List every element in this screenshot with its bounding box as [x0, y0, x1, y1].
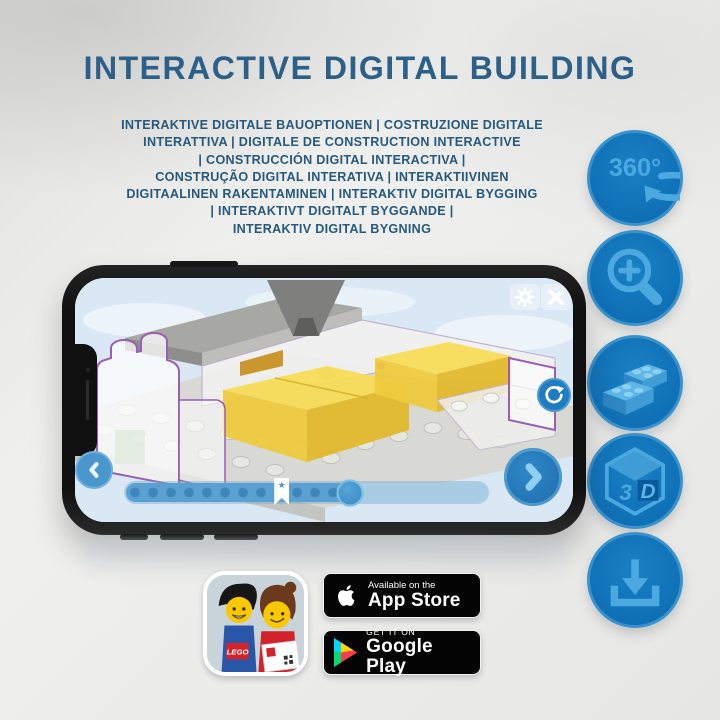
phone-screen: ★	[75, 278, 573, 522]
subtitle-line: INTERATTIVA | DIGITALE DE CONSTRUCTION I…	[82, 134, 582, 151]
next-step-button[interactable]	[504, 448, 562, 506]
subtitle-line: DIGITAALINEN RAKENTAMINEN | INTERAKTIV D…	[82, 186, 582, 203]
progress-handle[interactable]	[336, 479, 363, 506]
lego-brick-icon	[587, 335, 683, 431]
close-button[interactable]	[541, 284, 571, 310]
app-store-badge[interactable]: Available on the App Store	[323, 573, 481, 618]
apple-icon	[334, 581, 359, 610]
previous-step-button[interactable]	[75, 451, 113, 489]
close-icon	[547, 288, 565, 306]
google-play-badge[interactable]: GET IT ON Google Play	[323, 630, 481, 675]
zoom-in-icon	[587, 230, 683, 326]
subtitle-block: INTERAKTIVE DIGITALE BAUOPTIONEN | COSTR…	[82, 117, 582, 238]
phone-mockup: ★	[62, 265, 586, 535]
page-title: INTERACTIVE DIGITAL BUILDING	[0, 50, 720, 87]
subtitle-line: INTERAKTIVE DIGITALE BAUOPTIONEN | COSTR…	[82, 117, 582, 134]
lego-app-icon[interactable]: LEGO	[203, 571, 308, 676]
chevron-right-icon	[518, 462, 548, 492]
lego-logo-text: LEGO	[227, 648, 249, 657]
chevron-left-icon	[84, 460, 104, 480]
subtitle-line: CONSTRUÇÃO DIGITAL INTERATIVA | INTERAKT…	[82, 169, 582, 186]
360-label: 360°	[609, 154, 661, 182]
360-rotation-icon: 360°	[587, 130, 683, 226]
subtitle-line: | INTERAKTIVT DIGITALT BYGGANDE |	[82, 203, 582, 220]
google-play-icon	[334, 638, 357, 667]
speaker-slot	[86, 380, 89, 420]
rotate-view-button[interactable]	[537, 378, 571, 412]
subtitle-line: | CONSTRUCCIÓN DIGITAL INTERACTIVA |	[82, 152, 582, 169]
phone-notch	[75, 344, 97, 456]
settings-button[interactable]	[510, 284, 540, 310]
app-store-name: App Store	[368, 591, 461, 611]
gear-icon	[516, 288, 534, 306]
subtitle-line: INTERAKTIV DIGITAL BYGNING	[82, 221, 582, 238]
phone-power-button	[170, 261, 238, 267]
download-icon	[587, 532, 683, 628]
cube-d-label: D	[641, 480, 656, 503]
rotate-icon	[543, 384, 565, 406]
cube-3-label: 3	[619, 480, 632, 505]
camera-dot	[86, 368, 90, 372]
build-progress-bar[interactable]: ★	[126, 483, 487, 502]
lego-marketing-page: INTERACTIVE DIGITAL BUILDING INTERAKTIVE…	[0, 0, 720, 720]
google-play-name: Google Play	[366, 637, 470, 677]
3d-view-icon: 3 D	[587, 433, 683, 529]
progress-fill	[126, 483, 350, 502]
